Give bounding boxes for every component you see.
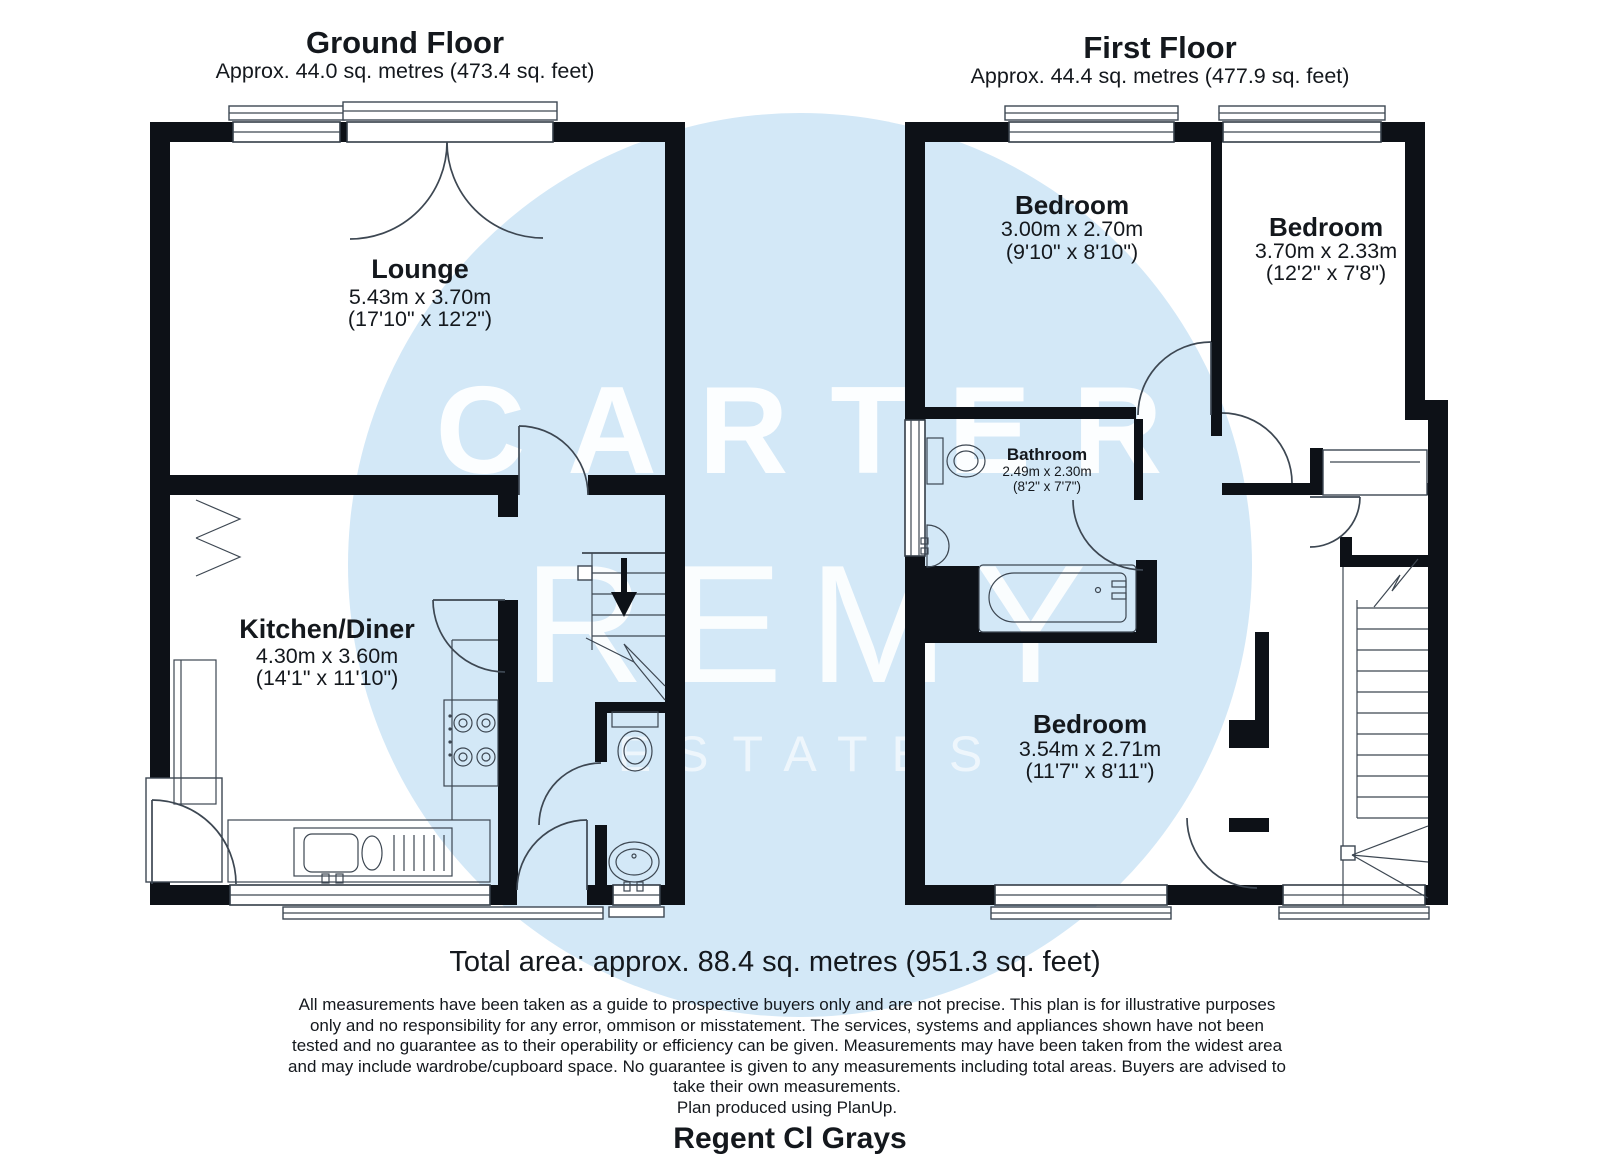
bathroom-door-icon xyxy=(1073,500,1143,570)
first-floor-stairs-icon xyxy=(1341,559,1428,905)
room-dims-bathroom-metric: 2.49m x 2.30m xyxy=(1002,465,1091,479)
wc-door-icon xyxy=(539,763,601,825)
cupboard-bifold-doors-icon xyxy=(196,500,240,576)
disclaimer-line: only and no responsibility for any error… xyxy=(288,1016,1286,1037)
bath-icon xyxy=(979,565,1136,632)
french-doors-icon xyxy=(350,142,543,239)
room-dims-lounge-imperial: (17'10" x 12'2") xyxy=(348,309,492,331)
disclaimer-line: Plan produced using PlanUp. xyxy=(288,1098,1286,1119)
room-dims-bedroom-front-imperial: (9'10" x 8'10") xyxy=(1006,242,1138,264)
lounge-door-icon xyxy=(519,426,588,495)
disclaimer-line: tested and no guarantee as to their oper… xyxy=(288,1036,1286,1057)
room-dims-bedroom-side-imperial: (12'2" x 7'8") xyxy=(1266,263,1386,285)
room-label-bedroom-back: Bedroom xyxy=(1033,711,1147,737)
ground-floor-title: Ground Floor xyxy=(306,27,504,58)
room-label-kitchen-diner: Kitchen/Diner xyxy=(239,616,415,643)
disclaimer-text: All measurements have been taken as a gu… xyxy=(288,995,1286,1118)
built-in-cupboard-icon xyxy=(1323,450,1427,495)
room-dims-kitchen-metric: 4.30m x 3.60m xyxy=(256,646,398,668)
room-label-bathroom: Bathroom xyxy=(1007,446,1087,463)
room-dims-bedroom-side-metric: 3.70m x 2.33m xyxy=(1255,241,1397,263)
first-floor-subtitle: Approx. 44.4 sq. metres (477.9 sq. feet) xyxy=(971,66,1350,88)
room-label-bedroom-side: Bedroom xyxy=(1269,214,1383,240)
room-dims-bathroom-imperial: (8'2" x 7'7") xyxy=(1013,480,1081,494)
cupboard-door-icon xyxy=(1310,497,1360,547)
kitchen-door-icon xyxy=(433,600,505,672)
floorplan-drawing xyxy=(0,0,1600,1163)
disclaimer-line: and may include wardrobe/cupboard space.… xyxy=(288,1057,1286,1078)
toilet-icon xyxy=(927,438,985,484)
room-dims-bedroom-front-metric: 3.00m x 2.70m xyxy=(1001,219,1143,241)
room-dims-lounge-metric: 5.43m x 3.70m xyxy=(349,287,491,309)
front-door-icon xyxy=(517,820,587,890)
ground-floor-windows xyxy=(229,102,664,919)
property-address: Regent Cl Grays xyxy=(673,1124,906,1154)
room-label-lounge: Lounge xyxy=(371,256,468,283)
ground-floor-plan xyxy=(146,102,685,919)
room-dims-kitchen-imperial: (14'1" x 11'10") xyxy=(256,668,399,690)
wc-toilet-icon xyxy=(612,712,658,771)
room-dims-bedroom-back-metric: 3.54m x 2.71m xyxy=(1019,739,1161,761)
ground-floor-subtitle: Approx. 44.0 sq. metres (473.4 sq. feet) xyxy=(216,61,595,83)
room-label-bedroom-front: Bedroom xyxy=(1015,192,1129,218)
disclaimer-line: take their own measurements. xyxy=(288,1077,1286,1098)
floorplan-page: CARTER REMY ESTATES xyxy=(0,0,1600,1163)
side-door-icon xyxy=(146,778,236,884)
wc-basin-icon xyxy=(609,842,659,891)
total-area-text: Total area: approx. 88.4 sq. metres (951… xyxy=(449,948,1100,977)
bedroom-front-door-icon xyxy=(1138,342,1211,415)
ground-floor-walls xyxy=(150,122,685,905)
bedroom-side-door-icon xyxy=(1222,413,1292,483)
stairs-down-arrow-icon xyxy=(611,558,637,617)
room-dims-bedroom-back-imperial: (11'7" x 8'11") xyxy=(1025,761,1154,783)
first-floor-title: First Floor xyxy=(1083,32,1236,63)
disclaimer-line: All measurements have been taken as a gu… xyxy=(288,995,1286,1016)
